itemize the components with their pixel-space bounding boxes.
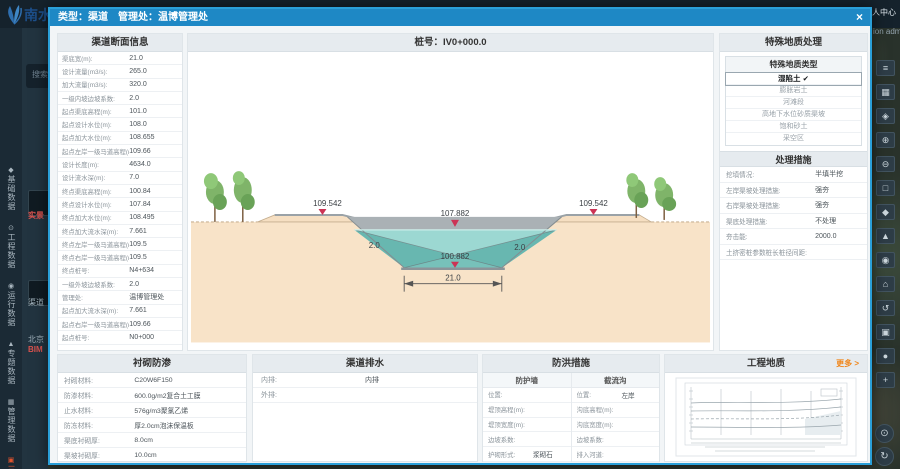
geology-type-label: 高地下水位砂质渠坡 — [762, 111, 825, 118]
left-elevation-label: 109.542 — [313, 199, 342, 208]
lining-table: 衬砌材料: C20W6F150 防渗材料: 600.0g/m2复合土工膜 止水材… — [58, 373, 246, 463]
table-row: 排入河道: — [572, 447, 660, 462]
table-row: 终点左岸一级马道高程(m): 109.5 — [58, 238, 182, 251]
row-value: 108.495 — [129, 214, 154, 221]
row-label: 挖填情况: — [726, 169, 815, 179]
geology-type-list: 湿陷土 ✔ 膨胀岩土 河滩段 — [726, 73, 861, 145]
row-label: 右岸渠坡处理措施: — [726, 200, 815, 210]
row-value: 左岸 — [621, 390, 634, 400]
map-tool-button[interactable]: ◈ — [876, 108, 895, 124]
sidebar-item-icon: ▦ — [8, 398, 15, 407]
row-value: 2.0 — [129, 95, 139, 102]
sidebar-item-label: 管理数据 — [6, 407, 16, 443]
flood-panel: 防洪措施 防护墙 位置: 堤顶高程(m): — [482, 354, 660, 462]
table-row: 终点渠底高程(m): 100.84 — [58, 185, 182, 198]
section-info-table: 渠底宽(m): 21.0 设计流量(m3/s): 265.0 加大流量(m3/s… — [58, 52, 182, 345]
row-label: 渠底衬砌厚: — [64, 435, 134, 445]
row-label: 终点渠底高程(m): — [62, 187, 129, 196]
check-icon: ✔ — [803, 74, 809, 83]
row-label: 渠底处理措施: — [726, 216, 815, 226]
row-value: 109.5 — [129, 241, 147, 248]
table-row: 边坡系数: — [483, 432, 571, 447]
lining-title: 衬砌防渗 — [58, 355, 246, 373]
table-row: 土挤密桩参数桩长桩径间距: — [720, 245, 867, 261]
table-row: 起点渠底高程(m): 101.0 — [58, 105, 182, 118]
row-value: 7.661 — [129, 307, 147, 314]
table-row: 起点加大水位(m): 108.655 — [58, 132, 182, 145]
row-label: 加大流量(m3/s): — [62, 80, 129, 89]
sidebar-item-label: 运行数据 — [6, 291, 16, 327]
row-label: 管理处: — [62, 293, 129, 302]
row-value: 内排 — [365, 375, 379, 385]
row-label: 终点左岸一级马道高程(m): — [62, 240, 129, 249]
table-row: 起点加大流水深(m): 7.661 — [58, 305, 182, 318]
sidebar-item[interactable]: ▲ 专题数据 — [6, 340, 16, 385]
map-tool-button[interactable]: ↺ — [876, 300, 895, 316]
slope-left-label: 2.0 — [369, 241, 381, 250]
map-tool-button[interactable]: ● — [876, 348, 895, 364]
row-label: 边坡系数: — [577, 435, 622, 444]
map-tool-button[interactable]: ▣ — [876, 324, 895, 340]
map-round-button[interactable]: ↻ — [875, 447, 894, 466]
row-label: 内排: — [261, 375, 365, 385]
table-row: 起点右岸一级马道高程(m): 109.66 — [58, 318, 182, 331]
row-value: 2.0 — [129, 281, 139, 288]
row-value: 2000.0 — [815, 233, 836, 240]
geology-type-item[interactable]: 高地下水位砂质渠坡 — [726, 109, 861, 121]
engineering-geology-panel: 工程地质 更多 > — [664, 354, 868, 462]
row-label: 设计长度(m): — [62, 160, 129, 169]
table-row: 渠坡衬砌厚: 10.0cm — [58, 448, 246, 463]
intercept-ditch-header: 截流沟 — [572, 373, 660, 388]
row-label: 终点右岸一级马道高程(m): — [62, 253, 129, 262]
row-value: 强夯 — [815, 185, 829, 195]
geology-type-label: 膨胀岩土 — [780, 87, 808, 94]
row-label: 起点设计水位(m): — [62, 120, 129, 129]
row-label: 堤顶高程(m): — [488, 405, 533, 414]
row-label: 一级内坡边坡系数: — [62, 94, 129, 103]
table-row: 堤顶高程(m): — [483, 403, 571, 418]
table-row: 边坡系数: — [572, 432, 660, 447]
table-row: 沟底高程(m): — [572, 403, 660, 418]
bottom-width-label: 21.0 — [445, 274, 461, 283]
row-label: 夯击能: — [726, 231, 815, 241]
sidebar-item-icon: ⊙ — [8, 224, 14, 233]
row-label: 渠底宽(m): — [62, 54, 129, 63]
special-geology-title: 特殊地质处理 — [720, 34, 867, 52]
row-value: 320.0 — [129, 81, 147, 88]
map-tool-button[interactable]: ▦ — [876, 84, 895, 100]
sidebar-item-icon: ▣ — [8, 456, 15, 465]
sidebar-item[interactable]: ◆ 基础数据 — [6, 166, 16, 211]
flood-wall-table: 位置: 堤顶高程(m): 堤顶宽度(m): — [483, 388, 571, 462]
row-value: 不处理 — [815, 216, 836, 226]
map-tool-button[interactable]: ◆ — [876, 204, 895, 220]
table-row: 堤顶宽度(m): — [483, 418, 571, 433]
table-row: 右岸渠坡处理措施: 强夯 — [720, 198, 867, 214]
map-tool-button[interactable]: ⊖ — [876, 156, 895, 172]
table-row: 左岸渠坡处理措施: 强夯 — [720, 183, 867, 199]
row-label: 终点设计水位(m): — [62, 200, 129, 209]
close-icon[interactable]: × — [856, 9, 863, 26]
table-row: 沟底宽度(m): — [572, 418, 660, 433]
sidebar-item[interactable]: ▣ 三维数据 — [6, 456, 16, 469]
sidebar-item-icon: ▲ — [8, 340, 15, 349]
row-label: 起点桩号: — [62, 333, 129, 342]
geology-drawing[interactable] — [675, 377, 857, 457]
row-value: N4+634 — [129, 267, 154, 274]
table-row: 终点加大流水深(m): 7.661 — [58, 225, 182, 238]
lining-panel: 衬砌防渗 衬砌材料: C20W6F150 防渗材料: 600.0g/m2复合土工… — [57, 354, 247, 462]
table-row: 起点桩号: N0+000 — [58, 331, 182, 344]
table-row: 终点桩号: N4+634 — [58, 265, 182, 278]
drainage-table: 内排: 内排 外排: — [253, 373, 477, 403]
row-label: 位置: — [577, 390, 622, 399]
table-row: 护砌形式: 浆砌石 — [483, 447, 571, 462]
row-value: 7.0 — [129, 174, 139, 181]
geology-type-box: 特殊地质类型 湿陷土 ✔ 膨胀岩土 — [725, 56, 862, 146]
stake-title: 桩号：IV0+000.0 — [188, 34, 713, 52]
trees-right — [626, 173, 676, 220]
row-value: 温博管理处 — [129, 292, 164, 302]
row-value: 21.0 — [129, 55, 143, 62]
sidebar-item-icon: ◆ — [8, 166, 13, 175]
row-value: 576g/m3聚氯乙烯 — [134, 405, 188, 415]
row-label: 起点加大水位(m): — [62, 133, 129, 142]
intercept-ditch-column: 截流沟 位置: 左岸 沟底高程(m): — [572, 373, 660, 462]
map-tool-button[interactable]: ≡ — [876, 60, 895, 76]
geology-type-label: 湿陷土 — [778, 74, 801, 83]
table-row: 加大流量(m3/s): 320.0 — [58, 79, 182, 92]
row-value: 100.84 — [129, 188, 150, 195]
geology-type-item[interactable]: 河滩段 — [726, 97, 861, 109]
geology-type-item[interactable]: 采空区 — [726, 133, 861, 145]
table-row: 夯击能: 2000.0 — [720, 229, 867, 245]
flood-title: 防洪措施 — [483, 355, 659, 373]
admin-username: ion admin — [873, 27, 900, 36]
table-row: 挖填情况: 半填半挖 — [720, 167, 867, 183]
row-value: 600.0g/m2复合土工膜 — [134, 390, 200, 400]
table-row: 设计长度(m): 4634.0 — [58, 158, 182, 171]
map-tool-button[interactable]: □ — [876, 180, 895, 196]
geology-type-label: 河滩段 — [783, 99, 804, 106]
sidebar-item-label: 专题数据 — [6, 349, 16, 385]
measures-title: 处理措施 — [720, 151, 867, 167]
row-label: 终点桩号: — [62, 266, 129, 275]
row-value: 7.661 — [129, 228, 147, 235]
row-label: 一级外坡边坡系数: — [62, 280, 129, 289]
row-label: 起点左岸一级马道高程(m): — [62, 147, 129, 156]
row-label: 起点加大流水深(m): — [62, 306, 129, 315]
table-row: 设计流水深(m): 7.0 — [58, 172, 182, 185]
row-label: 防冻材料: — [64, 420, 134, 430]
table-row: 止水材料: 576g/m3聚氯乙烯 — [58, 403, 246, 418]
table-row: 起点设计水位(m): 108.0 — [58, 118, 182, 131]
row-label: 外排: — [261, 390, 365, 400]
row-label: 设计流水深(m): — [62, 173, 129, 182]
table-row: 位置: — [483, 388, 571, 403]
special-geology-panel: 特殊地质处理 特殊地质类型 湿陷土 ✔ 膨胀岩土 — [719, 33, 868, 351]
row-label: 沟底宽度(m): — [577, 420, 622, 429]
table-row: 外排: — [253, 388, 477, 403]
section-info-title: 渠道断面信息 — [58, 34, 182, 52]
map-round-buttons: ⊙ ↻ — [875, 424, 894, 466]
engineering-geology-title: 工程地质 — [747, 358, 785, 369]
water-elevation-label: 107.882 — [441, 209, 470, 218]
row-value: 109.5 — [129, 254, 147, 261]
trees-left — [204, 171, 255, 222]
row-label: 终点加大流水深(m): — [62, 227, 129, 236]
map-tool-button[interactable]: ◉ — [876, 252, 895, 268]
cross-section-diagram: 109.542 107.882 109.542 100.882 2.0 2.0 — [188, 52, 713, 349]
cross-section-panel: 桩号：IV0+000.0 — [187, 33, 714, 351]
row-value: 浆砌石 — [533, 449, 553, 459]
map-tool-button[interactable]: ⊕ — [876, 132, 895, 148]
row-label: 起点右岸一级马道高程(m): — [62, 320, 129, 329]
intercept-ditch-table: 位置: 左岸 沟底高程(m): 沟底宽度(m): — [572, 388, 660, 462]
row-label: 土挤密桩参数桩长桩径间距: — [726, 247, 815, 257]
sidebar-item-label: 工程数据 — [6, 233, 16, 269]
row-value: 108.0 — [129, 121, 147, 128]
geology-type-item[interactable]: 膨胀岩土 — [726, 85, 861, 97]
row-label: 边坡系数: — [488, 435, 533, 444]
row-label: 位置: — [488, 390, 533, 399]
geology-type-label: 饱和砂土 — [780, 123, 808, 130]
right-elevation-label: 109.542 — [579, 199, 608, 208]
row-label: 沟底高程(m): — [577, 405, 622, 414]
row-label: 渠坡衬砌厚: — [64, 450, 134, 460]
row-value: N0+000 — [129, 334, 154, 341]
map-tool-button[interactable]: ▲ — [876, 228, 895, 244]
row-label: 堤顶宽度(m): — [488, 420, 533, 429]
geology-type-item[interactable]: 饱和砂土 — [726, 121, 861, 133]
row-label: 设计流量(m3/s): — [62, 67, 129, 76]
table-row: 渠底衬砌厚: 8.0cm — [58, 433, 246, 448]
table-row: 设计流量(m3/s): 265.0 — [58, 65, 182, 78]
table-row: 终点加大水位(m): 108.495 — [58, 212, 182, 225]
row-value: 半填半挖 — [815, 169, 843, 179]
geology-type-label: 采空区 — [783, 135, 804, 142]
layers-panel: 搜索地名 实景 渠道 北京 BIM — [22, 28, 48, 469]
dialog-title: 类型：渠道 管理处：温博管理处 — [58, 12, 208, 23]
row-value: 265.0 — [129, 68, 147, 75]
table-row: 一级外坡边坡系数: 2.0 — [58, 278, 182, 291]
table-row: 起点左岸一级马道高程(m): 109.66 — [58, 145, 182, 158]
row-value: 强夯 — [815, 200, 829, 210]
row-label: 防渗材料: — [64, 390, 134, 400]
table-row: 终点设计水位(m): 107.84 — [58, 198, 182, 211]
app-logo-icon — [4, 3, 24, 25]
flood-wall-header: 防护墙 — [483, 373, 571, 388]
sidebar-item[interactable]: ⊙ 工程数据 — [6, 224, 16, 269]
map-tool-button[interactable]: + — [876, 372, 895, 388]
map-toolbar: ≡ ▦ ◈ ⊕ ⊖ □ ◆ ▲ ◉ ⌂ ↺ ▣ ● + — [876, 60, 898, 388]
sidebar-item-label: 基础数据 — [6, 175, 16, 211]
sidebar-item-label: 三维数据 — [6, 465, 16, 469]
slope-right-label: 2.0 — [514, 243, 526, 252]
row-value: 101.0 — [129, 108, 147, 115]
row-label: 终点加大水位(m): — [62, 213, 129, 222]
row-value: 109.66 — [129, 148, 150, 155]
drainage-panel: 渠道排水 内排: 内排 外排: — [252, 354, 478, 462]
table-row: 衬砌材料: C20W6F150 — [58, 373, 246, 388]
section-info-panel: 渠道断面信息 渠底宽(m): 21.0 设计流量(m3/s): 265.0 加大… — [57, 33, 183, 351]
row-label: 排入河道: — [577, 450, 622, 459]
row-value: 109.66 — [129, 321, 150, 328]
drainage-title: 渠道排水 — [253, 355, 477, 373]
table-row: 终点右岸一级马道高程(m): 109.5 — [58, 251, 182, 264]
sidebar-item-icon: ◉ — [8, 282, 14, 291]
table-row: 位置: 左岸 — [572, 388, 660, 403]
channel-detail-dialog: 类型：渠道 管理处：温博管理处 × 渠道断面信息 渠底宽(m): 21.0 设计… — [48, 7, 872, 465]
row-value: 10.0cm — [134, 452, 156, 459]
bottom-elevation-label: 100.882 — [441, 252, 470, 261]
measures-table: 挖填情况: 半填半挖 左岸渠坡处理措施: 强夯 右岸渠坡处理措施: 强夯 — [720, 167, 867, 260]
row-label: 左岸渠坡处理措施: — [726, 185, 815, 195]
row-value: 8.0cm — [134, 437, 153, 444]
dialog-header: 类型：渠道 管理处：温博管理处 × — [50, 9, 870, 26]
table-row: 一级内坡边坡系数: 2.0 — [58, 92, 182, 105]
row-value: 4634.0 — [129, 161, 150, 168]
table-row: 渠底处理措施: 不处理 — [720, 214, 867, 230]
table-row: 渠底宽(m): 21.0 — [58, 52, 182, 65]
table-row: 防冻材料: 厚2.0cm泡沫保温板 — [58, 418, 246, 433]
more-link[interactable]: 更多 > — [836, 355, 859, 373]
flood-wall-column: 防护墙 位置: 堤顶高程(m): — [483, 373, 572, 462]
left-sidebar: ◆ 基础数据 ⊙ 工程数据 ◉ 运行数据 ▲ 专题数据 ▦ 管理数据 — [0, 28, 22, 469]
row-value: 厚2.0cm泡沫保温板 — [134, 420, 193, 430]
geology-type-header: 特殊地质类型 — [726, 57, 861, 73]
row-label: 止水材料: — [64, 405, 134, 415]
geology-type-item[interactable]: 湿陷土 ✔ — [726, 73, 861, 85]
table-row: 管理处: 温博管理处 — [58, 291, 182, 304]
row-value: 108.655 — [129, 134, 154, 141]
table-row: 内排: 内排 — [253, 373, 477, 388]
sidebar-item[interactable]: ◉ 运行数据 — [6, 282, 16, 327]
row-value: 107.84 — [129, 201, 150, 208]
sidebar-item[interactable]: ▦ 管理数据 — [6, 398, 16, 443]
row-label: 护砌形式: — [488, 450, 533, 459]
map-round-button[interactable]: ⊙ — [875, 424, 894, 443]
row-label: 衬砌材料: — [64, 375, 134, 385]
row-label: 起点渠底高程(m): — [62, 107, 129, 116]
table-row: 防渗材料: 600.0g/m2复合土工膜 — [58, 388, 246, 403]
screen: 南水北 个人中心 ion admin ◆ 基础数据 ⊙ 工程数据 ◉ 运行数据 … — [0, 0, 900, 469]
row-value: C20W6F150 — [134, 377, 172, 384]
map-tool-button[interactable]: ⌂ — [876, 276, 895, 292]
